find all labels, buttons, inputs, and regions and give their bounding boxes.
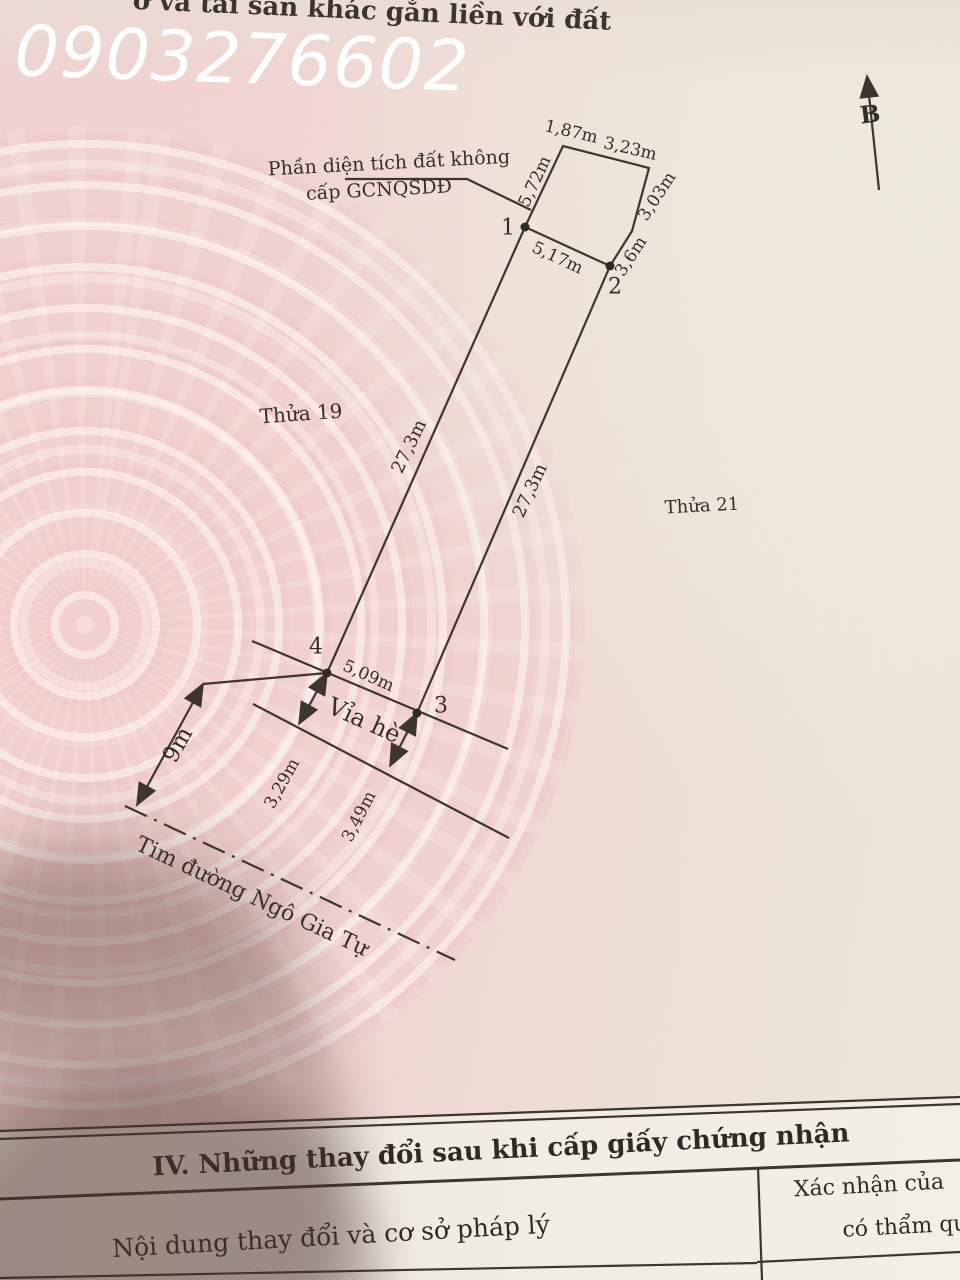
road-centerline	[125, 806, 455, 960]
cadastral-diagram	[0, 0, 960, 1280]
parcel-boundary-left	[327, 227, 525, 673]
table-column-divider	[758, 1167, 762, 1280]
vertex-dot-1	[521, 223, 530, 232]
dim-connector-line	[203, 673, 327, 684]
point-label-3: 3	[434, 694, 448, 717]
point-label-2: 2	[608, 275, 622, 298]
point-label-4: 4	[309, 635, 323, 658]
section4-right-column-header-line2: có thẩm qu	[842, 1212, 960, 1242]
vertex-dot-4	[323, 669, 332, 678]
vertex-dot-3	[413, 709, 422, 718]
point-label-1: 1	[501, 216, 515, 239]
parcel-label-19: Thửa 19	[259, 401, 343, 428]
parcel-label-21: Thửa 21	[664, 496, 739, 519]
parcel-boundary-right	[417, 266, 610, 713]
north-label: B	[858, 100, 881, 127]
phone-watermark: 0903276602	[13, 10, 471, 108]
certificate-page-photo: ở và tài sản khác gắn liền với đất Phần …	[0, 0, 960, 1280]
table-row-line-left	[0, 1263, 757, 1278]
table-row-line-right	[757, 1252, 960, 1262]
north-arrow	[867, 76, 879, 190]
